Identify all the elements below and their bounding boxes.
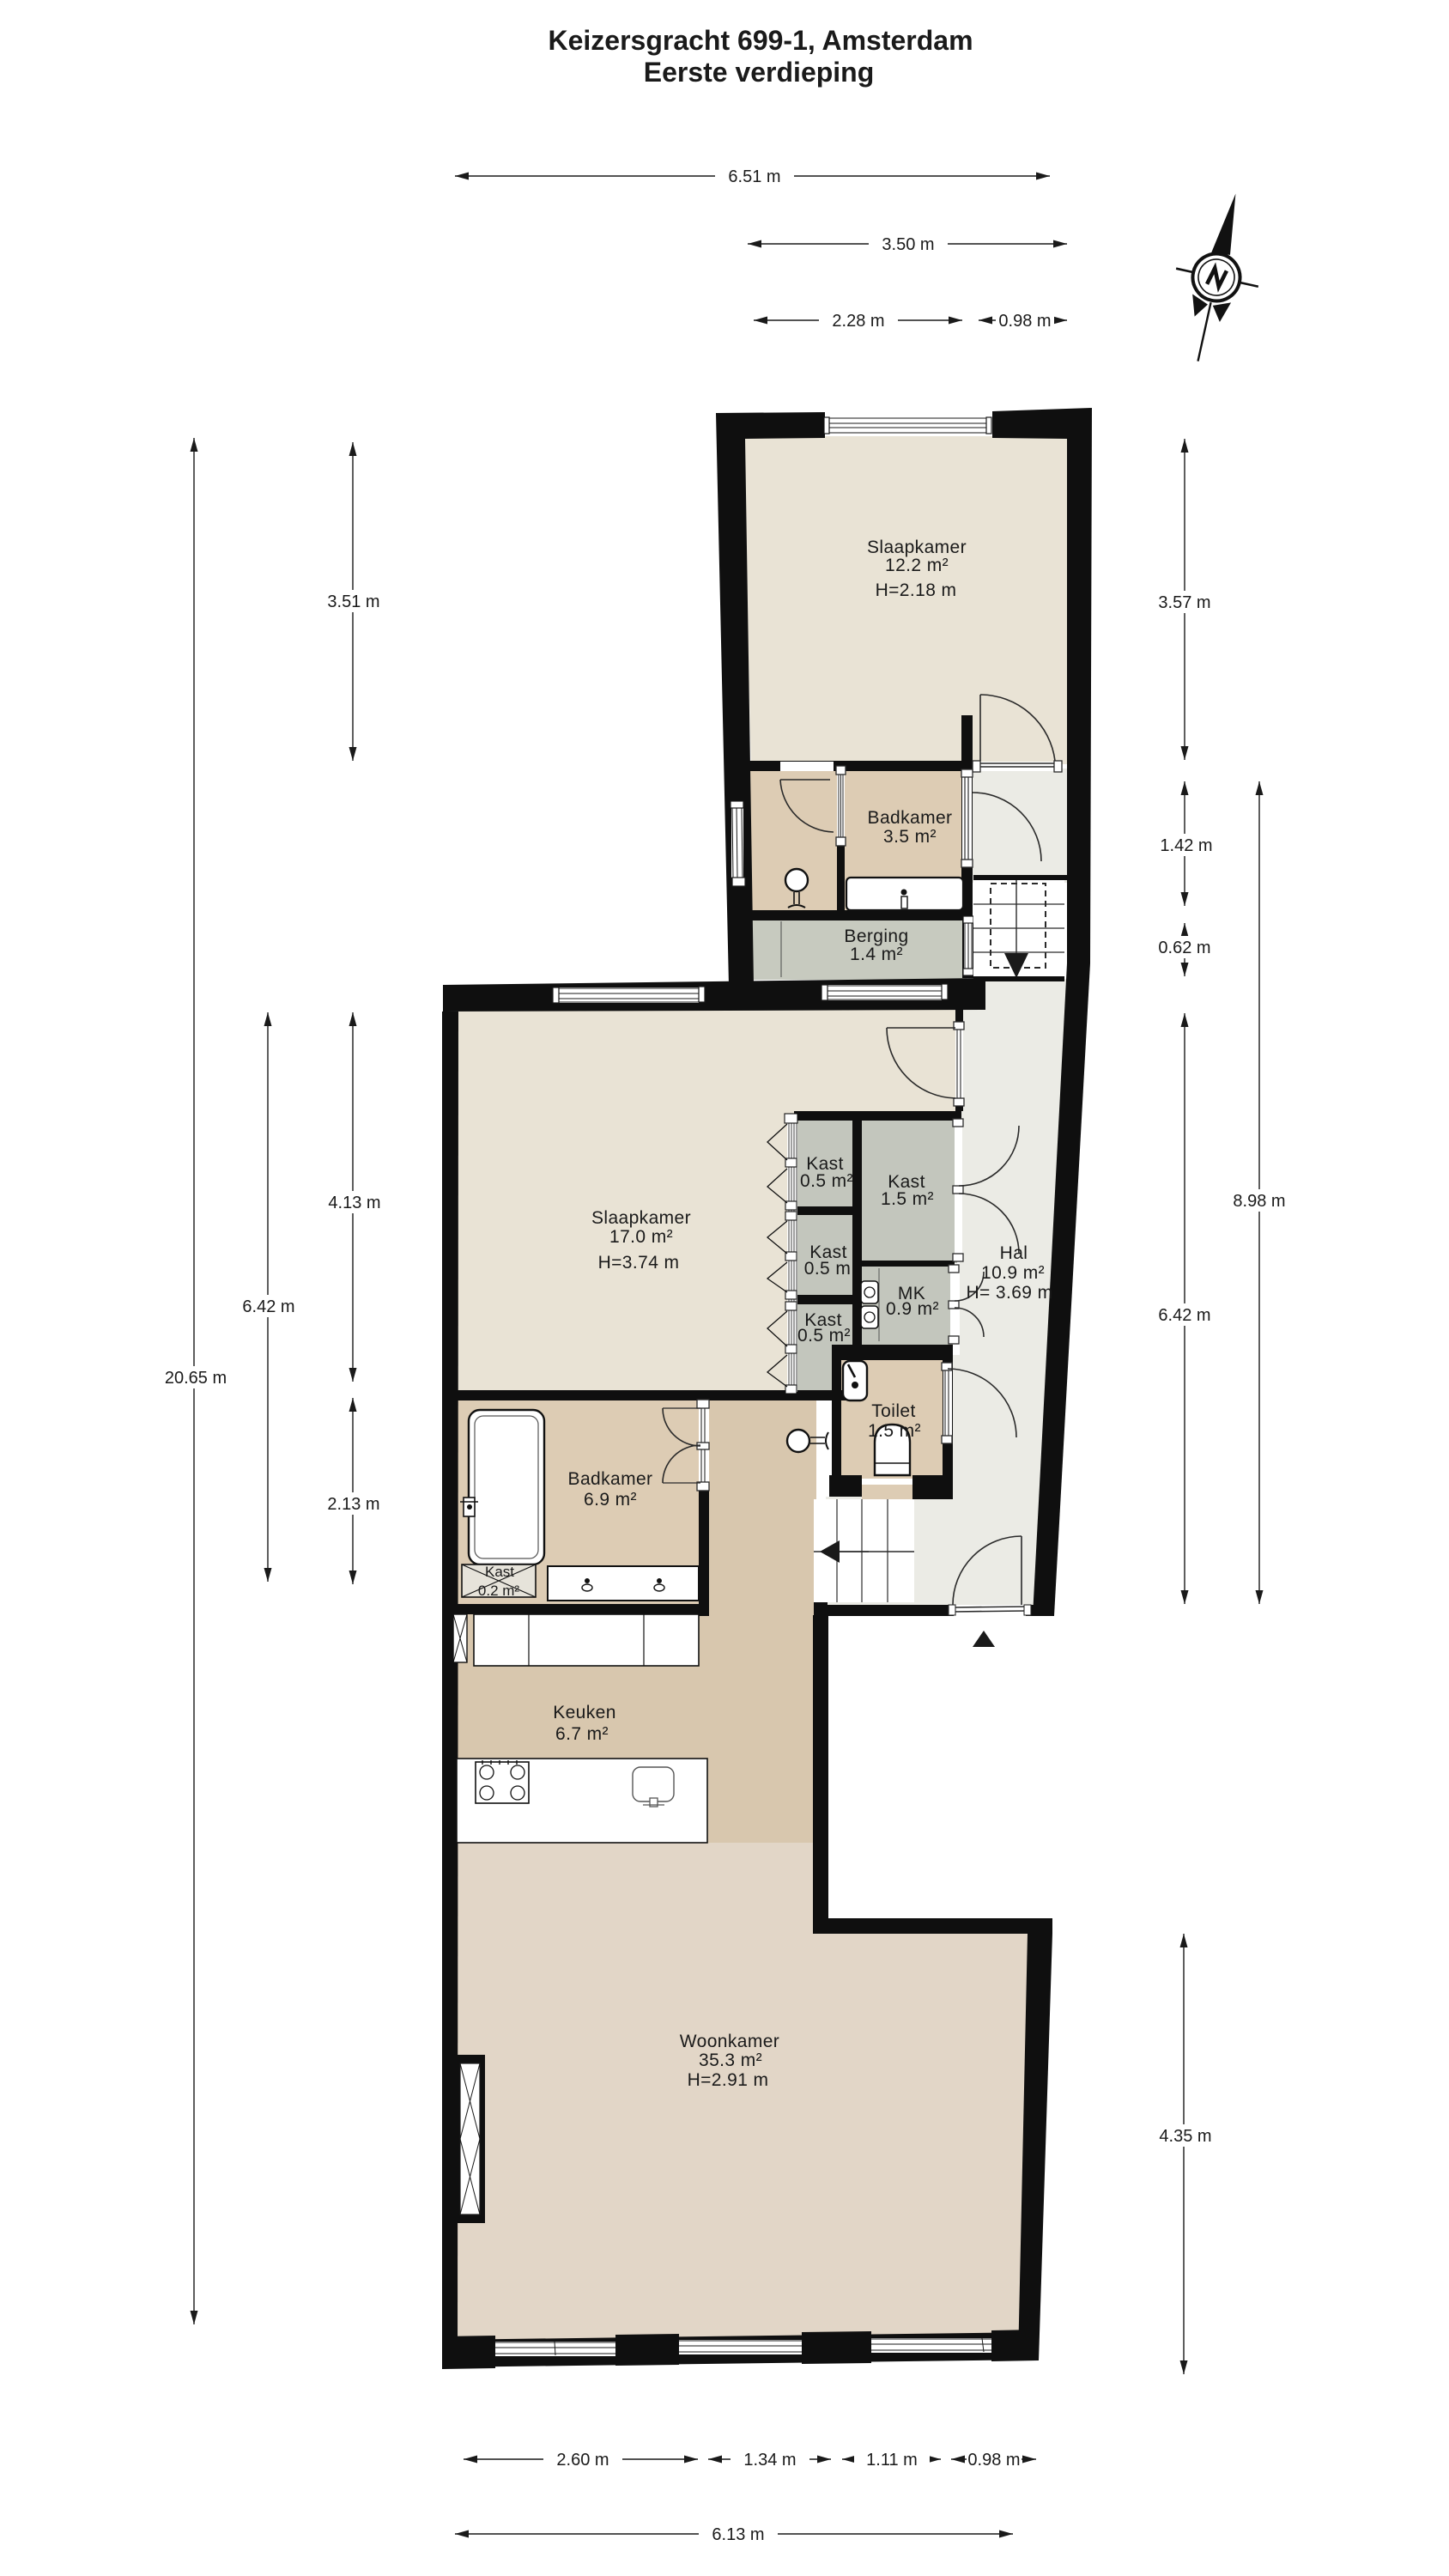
svg-text:Keizersgracht 699-1, Amsterdam: Keizersgracht 699-1, Amsterdam	[548, 25, 973, 56]
svg-text:2.13 m: 2.13 m	[327, 1495, 379, 1514]
svg-text:0.5 m: 0.5 m	[804, 1259, 852, 1279]
svg-text:H=2.91 m: H=2.91 m	[688, 2070, 769, 2090]
svg-text:6.51 m: 6.51 m	[728, 167, 780, 186]
svg-text:10.9 m²: 10.9 m²	[981, 1263, 1045, 1283]
svg-text:12.2 m²: 12.2 m²	[885, 556, 949, 575]
svg-text:H=2.18 m: H=2.18 m	[876, 580, 957, 600]
svg-text:2.60 m: 2.60 m	[556, 2451, 609, 2470]
svg-text:6.7 m²: 6.7 m²	[555, 1724, 609, 1744]
svg-text:1.5 m²: 1.5 m²	[868, 1421, 921, 1441]
svg-text:Kast: Kast	[485, 1564, 514, 1580]
svg-text:1.4 m²: 1.4 m²	[850, 945, 903, 964]
svg-text:35.3 m²: 35.3 m²	[699, 2050, 762, 2070]
svg-text:Slaapkamer: Slaapkamer	[867, 538, 967, 557]
svg-text:0.5 m²: 0.5 m²	[800, 1171, 853, 1191]
svg-text:6.13 m: 6.13 m	[712, 2525, 764, 2544]
svg-text:Badkamer: Badkamer	[868, 808, 953, 828]
svg-text:2.28 m: 2.28 m	[832, 312, 884, 331]
svg-text:1.42 m: 1.42 m	[1160, 836, 1212, 855]
svg-text:20.65 m: 20.65 m	[165, 1369, 227, 1388]
svg-text:0.62 m: 0.62 m	[1158, 939, 1210, 957]
svg-text:Keuken: Keuken	[553, 1703, 616, 1722]
svg-text:3.57 m: 3.57 m	[1158, 593, 1210, 612]
svg-text:8.98 m: 8.98 m	[1233, 1192, 1285, 1211]
svg-text:4.35 m: 4.35 m	[1159, 2127, 1211, 2146]
svg-text:3.51 m: 3.51 m	[327, 592, 379, 611]
svg-text:Slaapkamer: Slaapkamer	[591, 1208, 691, 1228]
svg-text:3.5 m²: 3.5 m²	[883, 827, 937, 847]
svg-text:0.5 m²: 0.5 m²	[797, 1326, 851, 1346]
svg-text:Hal: Hal	[1000, 1243, 1028, 1263]
svg-text:4.13 m: 4.13 m	[328, 1194, 380, 1212]
svg-text:H= 3.69 m: H= 3.69 m	[966, 1283, 1052, 1303]
svg-text:Badkamer: Badkamer	[568, 1469, 653, 1489]
svg-text:1.5 m²: 1.5 m²	[881, 1189, 934, 1209]
svg-text:6.9 m²: 6.9 m²	[584, 1490, 637, 1510]
svg-text:0.98 m: 0.98 m	[998, 312, 1051, 331]
svg-text:0.98 m: 0.98 m	[967, 2451, 1020, 2470]
svg-text:6.42 m: 6.42 m	[1158, 1306, 1210, 1325]
svg-text:0.2 m²: 0.2 m²	[478, 1583, 520, 1599]
svg-text:6.42 m: 6.42 m	[242, 1297, 294, 1316]
svg-text:1.34 m: 1.34 m	[743, 2451, 796, 2470]
svg-text:Woonkamer: Woonkamer	[680, 2032, 779, 2051]
svg-text:17.0 m²: 17.0 m²	[609, 1227, 673, 1247]
svg-text:3.50 m: 3.50 m	[882, 235, 934, 254]
svg-text:H=3.74 m: H=3.74 m	[598, 1253, 680, 1273]
svg-text:Eerste verdieping: Eerste verdieping	[644, 57, 875, 88]
svg-text:Toilet: Toilet	[871, 1401, 915, 1421]
svg-text:1.11 m: 1.11 m	[866, 2451, 918, 2470]
svg-text:Berging: Berging	[844, 927, 908, 946]
svg-text:0.9 m²: 0.9 m²	[886, 1299, 939, 1319]
